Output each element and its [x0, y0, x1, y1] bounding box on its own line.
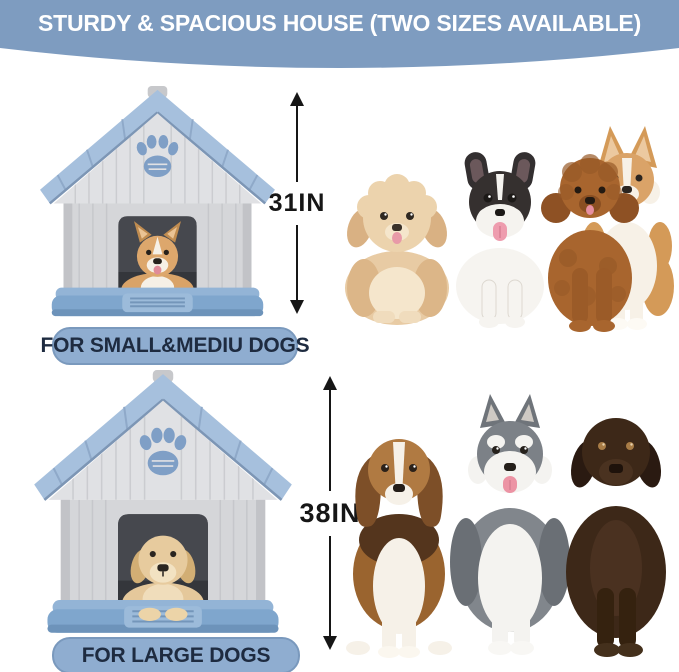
measure-line [296, 106, 298, 182]
beagle-photo [338, 412, 460, 658]
measure-line [329, 390, 331, 491]
page-title: STURDY & SPACIOUS HOUSE (TWO SIZES AVAIL… [0, 10, 679, 37]
measure-line [329, 536, 331, 637]
size-label-large-text: FOR LARGE DOGS [82, 644, 271, 668]
title-banner: STURDY & SPACIOUS HOUSE (TWO SIZES AVAIL… [0, 0, 679, 92]
chocolate-labrador-photo [552, 388, 679, 662]
arrow-down-icon [290, 300, 304, 314]
poodle-photo [538, 146, 642, 332]
size-label-small: FOR SMALL&MEDIU DOGS [52, 327, 298, 365]
havanese-puppy-photo [336, 166, 458, 326]
height-value-small: 31IN [269, 182, 326, 225]
arrow-down-icon [323, 636, 337, 650]
arrow-up-icon [323, 376, 337, 390]
size-label-small-text: FOR SMALL&MEDIU DOGS [41, 334, 310, 358]
size-label-large: FOR LARGE DOGS [52, 637, 300, 672]
product-infographic: STURDY & SPACIOUS HOUSE (TWO SIZES AVAIL… [0, 0, 679, 672]
small-dog-house-photo [40, 86, 275, 319]
measure-line [296, 225, 298, 301]
height-measure-small: 31IN [270, 92, 324, 314]
arrow-up-icon [290, 92, 304, 106]
large-dog-house-photo [34, 370, 292, 644]
